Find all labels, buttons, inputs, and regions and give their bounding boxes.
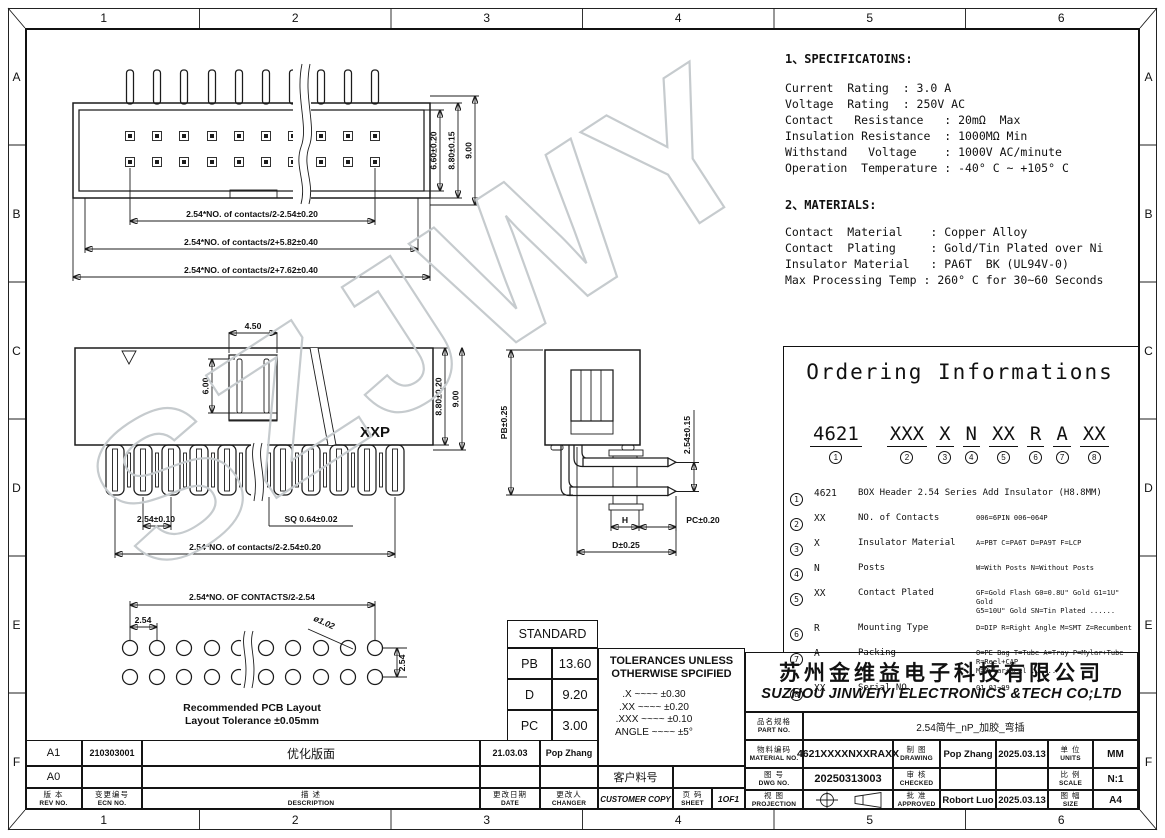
zone-col-label: 4 [583, 810, 775, 830]
code-segment: XXX [887, 423, 927, 447]
description-header-cn: 描 述 [301, 791, 321, 799]
ordering-item: 5XXContact PlatedGF=Gold Flash G0=0.8U" … [790, 587, 1137, 616]
first-angle-projection-icon [816, 792, 881, 809]
scale-label-cn: 比 例 [1060, 771, 1080, 779]
circled-index: 7 [1056, 451, 1069, 464]
ordering-code-group: XX8 [1080, 423, 1109, 465]
zone-col-label: 5 [774, 8, 966, 28]
ordering-item: 6RMounting TypeD=DIP R=Right Angle M=SMT… [790, 622, 1137, 641]
zone-row-label: B [8, 145, 25, 282]
changer-header-cn: 更改人 [556, 791, 582, 799]
size-label-cn: 图 幅 [1060, 792, 1080, 800]
tolerance-line: .XXX ~~~~ ±0.10 [615, 714, 693, 727]
spec-line: Withstand Voltage : 1000V AC/minute [785, 144, 1069, 160]
dim-label: 2.54*NO. of contacts/2+7.62±0.40 [184, 265, 318, 275]
zone-col-label: 6 [966, 810, 1158, 830]
standard-key: PB [507, 648, 552, 679]
break-line [310, 348, 336, 445]
approved-by: Robort Luo [940, 790, 996, 810]
pcb-caption-line1: Recommended PCB Layout [183, 702, 321, 714]
ordering-item: 14621BOX Header 2.54 Series Add Insulato… [790, 487, 1137, 506]
zone-row-label: F [8, 693, 25, 830]
drawing-label-cn: 制 图 [906, 746, 926, 754]
projection-symbol [803, 790, 893, 810]
side-view-dimensions [506, 350, 699, 556]
materials-title: 2、MATERIALS: [785, 196, 876, 213]
circled-index: 5 [997, 451, 1010, 464]
zone-row-label: C [1140, 282, 1157, 419]
circled-index: 1 [790, 493, 803, 506]
units-label-en: UNITS [1060, 755, 1081, 762]
item-name: Mounting Type [858, 622, 976, 635]
pcb-layout-view: 2.54*NO. OF CONTACTS/2-2.54 2.54 ø1.02 2… [55, 585, 485, 740]
dim-label: 2.54±0.10 [137, 514, 175, 524]
circled-index: 5 [790, 593, 803, 606]
zone-row-label: C [8, 282, 25, 419]
ordering-item: 3XInsulator MaterialA=PBT C=PA6T D=PA9T … [790, 537, 1137, 556]
approved-label: 批 准 APPROVED [893, 790, 940, 810]
code-segment: 4621 [810, 423, 862, 447]
item-name: Contact Plated [858, 587, 976, 600]
standard-key: D [507, 679, 552, 710]
pcb-caption-line2: Layout Tolerance ±0.05mm [185, 715, 319, 727]
item-name: NO. of Contacts [858, 512, 976, 525]
ordering-item: 2XXNO. of Contacts006=6PIN 006~064P [790, 512, 1137, 531]
part-no-value: 2.54简牛_nP_加胶_弯插 [803, 712, 1138, 740]
dwg-no-label: 图 号 DWG NO. [745, 768, 803, 790]
spec-line: Operation Temperature : -40° C ~ +105° C [785, 160, 1069, 176]
material-no-value: 4621XXXXNXXRAXX [803, 740, 893, 768]
company-name-en: SUZHOU JINWEIYI ELECTRONICS &TECH CO;LTD [761, 686, 1122, 702]
materials-list: Contact Material : Copper Alloy Contact … [785, 224, 1104, 288]
dim-label: 2.54*NO. of contacts/2+5.82±0.40 [184, 237, 318, 247]
date-header: 更改日期 DATE [480, 788, 540, 810]
spec-line: Contact Resistance : 20mΩ Max [785, 112, 1069, 128]
circled-index: 6 [790, 628, 803, 641]
part-no-label-en: PART NO. [758, 727, 790, 734]
standard-value: 3.00 [552, 710, 598, 741]
rev-no: A0 [25, 766, 82, 788]
dwg-no-value: 20250313003 [803, 768, 893, 790]
ordering-code-group: XXX2 [887, 423, 927, 465]
ordering-code-groups: 46211 XXX2 X3 N4 XX5 R6 A7 XX8 [810, 423, 1109, 465]
size-label-en: SIZE [1063, 801, 1078, 808]
ordering-code-group: R6 [1027, 423, 1044, 465]
break-line [293, 64, 312, 204]
pcb-dimensions [130, 601, 407, 677]
specifications-list: Current Rating : 3.0 A Voltage Rating : … [785, 80, 1069, 176]
zone-col-label: 2 [200, 810, 392, 830]
zone-col-label: 2 [200, 8, 392, 28]
company-name-cn: 苏州金维益电子科技有限公司 [779, 662, 1104, 685]
checked-date [996, 768, 1048, 790]
checked-label-cn: 审 核 [906, 771, 926, 779]
item-options: GF=Gold Flash G0=0.8U" Gold G1=1U" Gold … [976, 587, 1137, 616]
ecn-no [82, 766, 142, 788]
customer-part-value [673, 766, 745, 788]
scale-label: 比 例 SCALE [1048, 768, 1093, 790]
code-segment: XX [989, 423, 1018, 447]
rev-no: A1 [25, 740, 82, 766]
dim-label: 2.54*NO. of contacts/2-2.54±0.20 [189, 542, 321, 552]
zone-col-label: 3 [391, 8, 583, 28]
circled-index: 2 [790, 518, 803, 531]
dim-label: 2.54*NO. of contacts/2-2.54±0.20 [186, 209, 318, 219]
projection-label-en: PROJECTION [752, 801, 796, 808]
item-code: 4621 [814, 487, 858, 500]
zone-row-label: E [8, 556, 25, 693]
zone-row-label: E [1140, 556, 1157, 693]
sheet-label-cn: 页 码 [682, 791, 702, 799]
changer-header: 更改人 CHANGER [540, 788, 598, 810]
scale-value: N:1 [1093, 768, 1138, 790]
material-line: Max Processing Temp : 260° C for 30~60 S… [785, 272, 1104, 288]
top-view-contacts [126, 132, 380, 167]
revision-desc [142, 766, 480, 788]
item-code: XX [814, 512, 858, 525]
revision-changer [540, 766, 598, 788]
dim-label: ø1.02 [312, 613, 336, 631]
approved-label-cn: 批 准 [906, 792, 926, 800]
code-segment: R [1027, 423, 1044, 447]
item-code: X [814, 537, 858, 550]
zone-col-label: 1 [8, 8, 200, 28]
circled-index: 3 [938, 451, 951, 464]
description-header-en: DESCRIPTION [288, 800, 335, 807]
drawing-sheet: 1 2 3 4 5 6 1 2 3 4 5 6 A B C D E F A B … [0, 0, 1165, 838]
tolerance-header-line2: OTHERWISE SPCIFIED [611, 668, 731, 681]
dim-label: PC±0.20 [686, 515, 720, 525]
circled-index: 4 [965, 451, 978, 464]
size-label: 图 幅 SIZE [1048, 790, 1093, 810]
polarity-mark [122, 351, 136, 364]
dim-label: 4.50 [245, 321, 262, 331]
circled-index: 3 [790, 543, 803, 556]
dim-label: 6.00 [201, 377, 211, 394]
material-no-label-en: MATERIAL NO. [750, 755, 799, 762]
zone-col-label: 4 [583, 8, 775, 28]
zone-col-label: 5 [774, 810, 966, 830]
ecn-no-header: 变更编号 ECN NO. [82, 788, 142, 810]
rev-no-header: 版 本 REV NO. [25, 788, 82, 810]
material-line: Contact Material : Copper Alloy [785, 224, 1104, 240]
dwg-no-label-cn: 图 号 [764, 771, 784, 779]
scale-label-en: SCALE [1059, 780, 1082, 787]
material-no-label-cn: 物料编码 [757, 746, 791, 754]
top-view-dimensions [73, 96, 479, 281]
zone-columns-top: 1 2 3 4 5 6 [8, 8, 1157, 28]
material-no-label: 物料编码 MATERIAL NO. [745, 740, 803, 768]
code-segment: XX [1080, 423, 1109, 447]
units-label: 单 位 UNITS [1048, 740, 1093, 768]
projection-label-cn: 视 图 [764, 792, 784, 800]
sheet-label-en: SHEET [681, 800, 704, 807]
rev-no-header-en: REV NO. [39, 800, 67, 807]
checked-label: 审 核 CHECKED [893, 768, 940, 790]
revision-desc: 优化版面 [142, 740, 480, 766]
customer-part-label: 客户料号 [598, 766, 673, 788]
circled-index: 1 [829, 451, 842, 464]
revision-date: 21.03.03 [480, 740, 540, 766]
dim-label: 6.60±0.20 [429, 131, 439, 169]
spec-line: Current Rating : 3.0 A [785, 80, 1069, 96]
top-view-body [73, 103, 430, 198]
zone-col-label: 6 [966, 8, 1158, 28]
zone-row-label: A [1140, 8, 1157, 145]
front-view-comb [106, 443, 404, 501]
dim-label: PB±0.25 [499, 406, 509, 440]
spec-line: Voltage Rating : 250V AC [785, 96, 1069, 112]
tolerance-line: ANGLE ~~~~ ±5° [615, 727, 693, 740]
standard-key: PC [507, 710, 552, 741]
drawing-author: Pop Zhang [940, 740, 996, 768]
approved-label-en: APPROVED [897, 801, 935, 808]
ecn-no: 210303001 [82, 740, 142, 766]
circled-index: 2 [900, 451, 913, 464]
drawing-label-en: DRAWING [900, 755, 933, 762]
ordering-code-group: XX5 [989, 423, 1018, 465]
specifications-title: 1、SPECIFICATOINS: [785, 50, 913, 67]
zone-rows-left: A B C D E F [8, 8, 25, 830]
item-options: W=With Posts N=Without Posts [976, 562, 1137, 573]
part-no-label-cn: 品名规格 [757, 718, 791, 726]
item-code: R [814, 622, 858, 635]
code-segment: N [963, 423, 980, 447]
standard-value: 9.20 [552, 679, 598, 710]
customer-copy-label: CUSTOMER COPY [598, 788, 673, 810]
zone-row-label: B [1140, 145, 1157, 282]
material-line: Insulator Material : PA6T BK (UL94V-0) [785, 256, 1104, 272]
item-options: 006=6PIN 006~064P [976, 512, 1137, 523]
dim-label: 8.80±0.15 [447, 131, 457, 169]
approved-date: 2025.03.13 [996, 790, 1048, 810]
break-line [241, 630, 257, 688]
dim-label: 8.80±0.20 [434, 377, 444, 415]
item-options: D=DIP R=Right Angle M=SMT Z=Recumbent [976, 622, 1137, 633]
zone-rows-right: A B C D E F [1140, 8, 1157, 830]
code-segment: X [936, 423, 953, 447]
dim-label: SQ 0.64±0.02 [285, 514, 338, 524]
rev-no-header-cn: 版 本 [43, 791, 63, 799]
projection-label: 视 图 PROJECTION [745, 790, 803, 810]
item-options: A=PBT C=PA6T D=PA9T F=LCP [976, 537, 1137, 548]
company-block: 苏州金维益电子科技有限公司 SUZHOU JINWEIYI ELECTRONIC… [745, 652, 1138, 712]
ordering-code-group: N4 [963, 423, 980, 465]
top-view: 2.54*NO. of contacts/2-2.54±0.20 2.54*NO… [55, 52, 485, 307]
item-options [976, 487, 1137, 489]
zone-col-label: 3 [391, 810, 583, 830]
date-header-cn: 更改日期 [493, 791, 527, 799]
part-variant-label: XXP [360, 424, 390, 441]
zone-row-label: D [8, 419, 25, 556]
tolerance-box: TOLERANCES UNLESS OTHERWISE SPCIFIED .X … [598, 648, 745, 766]
zone-col-label: 1 [8, 810, 200, 830]
dim-label: 9.00 [464, 142, 474, 159]
sheet-label: 页 码 SHEET [673, 788, 712, 810]
tolerance-line: .X ~~~~ ±0.30 [615, 689, 693, 702]
drawing-label: 制 图 DRAWING [893, 740, 940, 768]
circled-index: 4 [790, 568, 803, 581]
tolerance-header-line1: TOLERANCES UNLESS [610, 655, 733, 668]
side-view-body [545, 350, 640, 450]
item-name: Posts [858, 562, 976, 575]
dim-label: 9.00 [451, 390, 461, 407]
sheet-value: 1OF1 [712, 788, 745, 810]
ordering-code-group: A7 [1053, 423, 1070, 465]
standard-table-title: STANDARD [507, 620, 598, 648]
ecn-no-header-en: ECN NO. [98, 800, 127, 807]
ordering-item: 4NPostsW=With Posts N=Without Posts [790, 562, 1137, 581]
ordering-code-group: 46211 [810, 423, 862, 465]
item-code: N [814, 562, 858, 575]
revision-date [480, 766, 540, 788]
revision-changer: Pop Zhang [540, 740, 598, 766]
circled-index: 8 [1088, 451, 1101, 464]
spec-line: Insulation Resistance : 1000MΩ Min [785, 128, 1069, 144]
ecn-no-header-cn: 变更编号 [95, 791, 129, 799]
dim-label: D±0.25 [612, 540, 640, 550]
standard-value: 13.60 [552, 648, 598, 679]
checked-value [940, 768, 996, 790]
part-no-label: 品名规格 PART NO. [745, 712, 803, 740]
circled-index: 6 [1029, 451, 1042, 464]
size-value: A4 [1093, 790, 1138, 810]
checked-label-en: CHECKED [900, 780, 934, 787]
units-label-cn: 单 位 [1060, 746, 1080, 754]
side-view-pins [561, 445, 676, 496]
zone-columns-bottom: 1 2 3 4 5 6 [8, 810, 1157, 830]
dim-label: 2.54 [397, 654, 407, 671]
front-view: 4.50 6.00 XXP 8.80±0.20 9.00 2.54±0.10 S… [55, 315, 485, 585]
dim-label: 2.54*NO. OF CONTACTS/2-2.54 [189, 592, 315, 602]
code-segment: A [1053, 423, 1070, 447]
item-name: BOX Header 2.54 Series Add Insulator (H8… [858, 487, 976, 500]
top-view-pins [127, 70, 379, 104]
ordering-code-group: X3 [936, 423, 953, 465]
description-header: 描 述 DESCRIPTION [142, 788, 480, 810]
tolerance-line: .XX ~~~~ ±0.20 [615, 702, 693, 715]
date-header-en: DATE [501, 800, 519, 807]
changer-header-en: CHANGER [552, 800, 586, 807]
dim-label: 2.54±0.15 [682, 416, 692, 454]
material-line: Contact Plating : Gold/Tin Plated over N… [785, 240, 1104, 256]
dwg-no-label-en: DWG NO. [759, 780, 790, 787]
zone-row-label: A [8, 8, 25, 145]
drawing-date: 2025.03.13 [996, 740, 1048, 768]
dim-label: 2.54 [135, 615, 152, 625]
item-code: XX [814, 587, 858, 600]
units-value: MM [1093, 740, 1138, 768]
item-name: Insulator Material [858, 537, 976, 550]
zone-row-label: F [1140, 693, 1157, 830]
side-view: PB±0.25 2.54±0.15 H PC±0.20 D±0.25 [485, 330, 760, 585]
dim-label: H [622, 515, 628, 525]
zone-row-label: D [1140, 419, 1157, 556]
ordering-title: Ordering Informations [783, 360, 1137, 384]
